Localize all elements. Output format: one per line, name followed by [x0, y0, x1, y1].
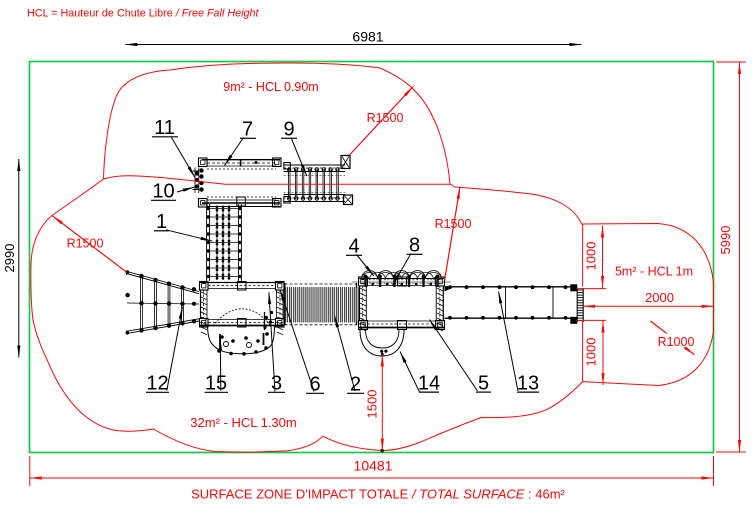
svg-text:1000: 1000 — [584, 338, 599, 367]
svg-text:5m² - HCL 1m: 5m² - HCL 1m — [615, 265, 693, 279]
svg-text:6: 6 — [309, 374, 320, 396]
svg-text:1: 1 — [156, 211, 167, 233]
svg-text:10: 10 — [152, 181, 174, 203]
svg-text:15: 15 — [205, 373, 227, 395]
svg-text:5990: 5990 — [718, 226, 733, 255]
svg-text:14: 14 — [418, 372, 440, 394]
svg-text:10481: 10481 — [354, 458, 393, 474]
svg-text:1000: 1000 — [584, 242, 599, 271]
svg-text:8: 8 — [409, 235, 420, 257]
svg-text:2990: 2990 — [2, 244, 17, 273]
svg-text:5: 5 — [478, 373, 489, 395]
svg-text:11: 11 — [154, 117, 175, 139]
svg-text:R1500: R1500 — [367, 111, 404, 125]
svg-text:7: 7 — [242, 119, 253, 141]
svg-text:R1500: R1500 — [435, 217, 472, 231]
svg-text:R1500: R1500 — [67, 237, 104, 251]
svg-text:9m² - HCL 0.90m: 9m² - HCL 0.90m — [223, 80, 318, 94]
svg-text:1500: 1500 — [365, 390, 380, 419]
svg-text:4: 4 — [348, 236, 359, 258]
svg-text:12: 12 — [146, 373, 168, 395]
svg-text:SURFACE ZONE D'IMPACT TOTALE /: SURFACE ZONE D'IMPACT TOTALE / TOTAL SUR… — [191, 487, 565, 502]
svg-text:6981: 6981 — [352, 29, 383, 45]
svg-text:R1000: R1000 — [658, 335, 695, 349]
svg-text:HCL = Hauteur de Chute Libre /: HCL = Hauteur de Chute Libre / Free Fall… — [27, 8, 260, 20]
svg-text:32m² - HCL 1.30m: 32m² - HCL 1.30m — [190, 415, 296, 430]
svg-text:13: 13 — [517, 373, 539, 395]
svg-text:3: 3 — [271, 373, 282, 395]
svg-text:2000: 2000 — [645, 290, 674, 305]
svg-text:2: 2 — [350, 374, 361, 396]
svg-text:9: 9 — [283, 119, 294, 141]
